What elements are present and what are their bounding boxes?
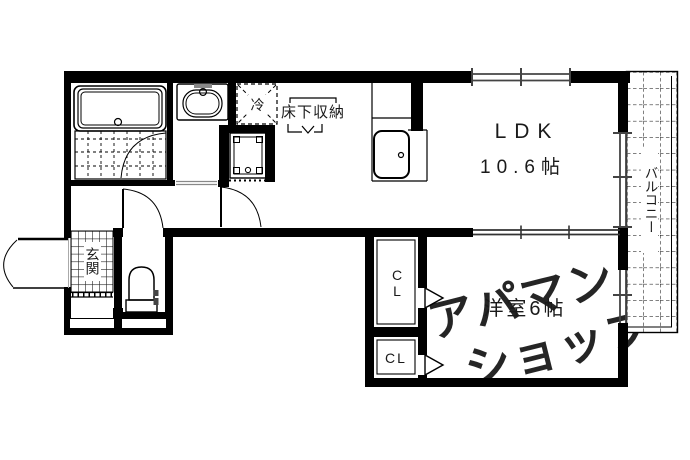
balcony-label: バルコニー (643, 166, 658, 234)
entrance-floor (71, 292, 113, 318)
porch-slot-right (122, 319, 166, 328)
balcony: バルコニー (627, 72, 678, 333)
floor-plan-svg: アパマン ショップ バルコニー (0, 0, 690, 460)
entrance-label: 玄関 (85, 246, 101, 276)
ldk-name: LDK (495, 120, 560, 143)
refrigerator-label: 冷 (251, 97, 265, 113)
closet-upper-label: CL (389, 267, 405, 299)
floor-plan: アパマン ショップ バルコニー (0, 0, 690, 460)
closet-lower-label: CL (385, 350, 407, 366)
porch-slot-left (70, 319, 114, 328)
ldk-size: 10.6帖 (480, 156, 566, 178)
underfloor-storage-label: 床下収納 (281, 104, 345, 121)
bedroom-label: 洋室6帖 (483, 297, 566, 320)
